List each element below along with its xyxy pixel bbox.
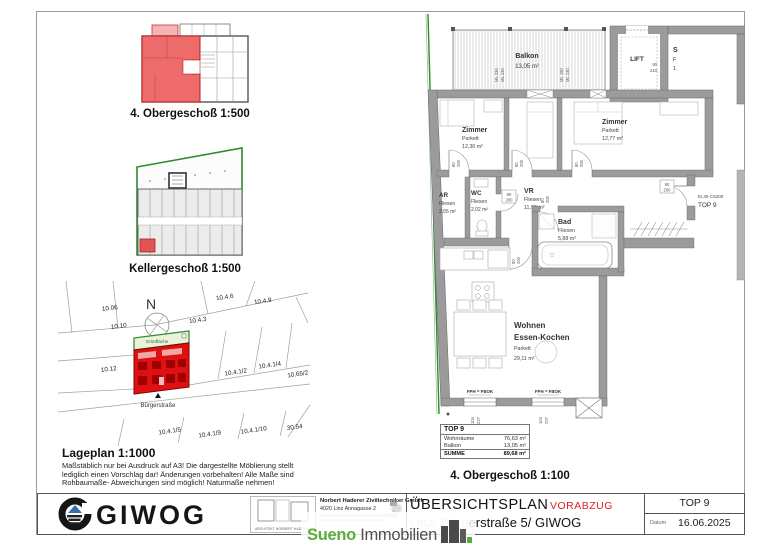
room-label-bad: Bad Fliesen 5,88 m²: [558, 219, 576, 242]
kitchen: [440, 248, 510, 302]
svg-text:12,30 m²: 12,30 m²: [462, 144, 483, 150]
svg-text:Essen-Kochen: Essen-Kochen: [514, 333, 570, 342]
svg-text:1: 1: [673, 66, 676, 72]
balcony: [453, 30, 605, 90]
svg-text:2,65 m²: 2,65 m²: [439, 209, 456, 215]
svg-text:104: 104: [470, 416, 475, 424]
svg-text:S: S: [673, 47, 678, 54]
giwog-logo: GIWOG: [58, 497, 244, 531]
watermark-building-icon: [440, 517, 472, 545]
area-summary-table: TOP 9 Wohnräume 76,63 m² Balkon 13,05 m²…: [440, 424, 530, 459]
svg-text:Fliesen: Fliesen: [471, 199, 487, 205]
caption-obergeschoss-500: 4. Obergeschoß 1:500: [75, 108, 305, 120]
floorplan-main: Balkon 13,05 m² ML 230 ML 230 ML 190 ML …: [424, 10, 745, 430]
note-line-3: Rohbaumaße- Abweichungen sind möglich! N…: [62, 479, 374, 488]
svg-text:10.4.6: 10.4.6: [216, 293, 235, 302]
svg-text:Fliesen: Fliesen: [558, 228, 575, 234]
document-title: ÜBERSICHTSPLAN: [410, 497, 548, 513]
green-area-label: Grünfläche: [146, 339, 169, 344]
svg-text:Bad: Bad: [558, 219, 571, 226]
mountain-icon: [68, 505, 82, 513]
table-total-row: SUMME 89,68 m²: [441, 449, 529, 458]
table-row: Balkon 13,05 m²: [441, 442, 529, 449]
svg-text:12,77 m²: 12,77 m²: [602, 136, 623, 142]
svg-text:VR: VR: [524, 188, 534, 195]
caption-lageplan: Lageplan 1:1000: [62, 446, 155, 460]
room-label-living: Wohnen Essen-Kochen Parkett 29,11 m²: [514, 321, 570, 362]
svg-text:10.4.1/4: 10.4.1/4: [258, 360, 282, 370]
room-label-balkon: Balkon: [515, 53, 538, 60]
svg-text:Parkett: Parkett: [462, 136, 479, 142]
siteplan: N Grünfläche Bürgerstraße 10.06 10.4.6 1…: [58, 281, 310, 446]
svg-text:Fliesen: Fliesen: [439, 201, 455, 207]
svg-text:227: 227: [544, 416, 549, 424]
table-row: Wohnräume 76,63 m²: [441, 435, 529, 442]
svg-text:10.65/2: 10.65/2: [287, 370, 309, 380]
svg-text:Parkett: Parkett: [514, 346, 531, 352]
svg-text:5,88 m²: 5,88 m²: [558, 236, 576, 242]
entry-height: 200: [664, 188, 672, 193]
watermark-text: Sueno Immobilien: [307, 526, 437, 545]
caption-obergeschoss-100: 4. Obergeschoß 1:100: [420, 470, 600, 482]
svg-text:29,11 m²: 29,11 m²: [514, 356, 535, 362]
bedroom-door-dims: 80 200 80 200 80 200: [451, 159, 584, 167]
stair-hatch-main: [630, 222, 688, 236]
svg-text:200: 200: [519, 159, 524, 167]
street-marker: [155, 393, 161, 398]
room-label-lift: LIFT: [630, 56, 644, 63]
dining-set: [454, 300, 506, 368]
svg-text:ML 230: ML 230: [494, 68, 499, 82]
svg-text:10.4.9: 10.4.9: [254, 297, 273, 306]
svg-text:10.12: 10.12: [101, 365, 118, 374]
summary-title: TOP 9: [441, 425, 529, 435]
svg-text:200: 200: [545, 195, 550, 203]
date-value: 16.06.2025: [678, 517, 731, 529]
street-label: Bürgerstraße: [140, 403, 176, 409]
entry-width: 90: [665, 182, 670, 187]
window-dims: 104 227 104 227: [470, 416, 549, 424]
room-label-zimmer2: Zimmer Parkett 12,77 m²: [602, 119, 628, 142]
giwog-wordmark: GIWOG: [96, 500, 207, 530]
svg-text:AR: AR: [439, 192, 449, 199]
miniplan-kellergeschoss: [125, 133, 250, 263]
plan-sheet: 4. Obergeschoß 1:500 Kellergeschoß 1:500: [0, 0, 770, 545]
svg-text:200: 200: [506, 198, 514, 203]
svg-text:10.4.1/9: 10.4.1/9: [198, 429, 222, 439]
svg-text:Fliesen: Fliesen: [524, 197, 541, 203]
svg-text:10.4.3: 10.4.3: [189, 316, 208, 325]
address-suffix: erstraße 5/ GIWOG: [469, 515, 582, 530]
scale-note: Maßstäblich nur bei Ausdruck auf A3! Die…: [62, 462, 374, 488]
entry-unit-label: TOP 9: [698, 202, 717, 209]
svg-text:FPH = FBOK: FPH = FBOK: [535, 389, 562, 394]
north-letter: N: [146, 296, 156, 312]
svg-text:2,02 m²: 2,02 m²: [471, 207, 488, 213]
svg-text:ML 190: ML 190: [559, 68, 564, 82]
svg-text:10.4.1/5: 10.4.1/5: [158, 426, 182, 436]
room-label-zimmer1: Zimmer Parkett 12,30 m²: [462, 127, 488, 150]
svg-text:10.4.1/10: 10.4.1/10: [240, 425, 267, 436]
svg-text:210: 210: [650, 68, 658, 73]
svg-text:ML 230: ML 230: [500, 68, 505, 82]
watermark: Sueno Immobilien: [301, 512, 475, 545]
stairwell-truncated-label: S F 1: [673, 47, 678, 72]
svg-text:104: 104: [538, 416, 543, 424]
svg-text:80: 80: [507, 192, 512, 197]
caption-kellergeschoss-500: Kellergeschoß 1:500: [70, 263, 300, 275]
svg-text:200: 200: [456, 159, 461, 167]
svg-text:F: F: [673, 57, 677, 63]
svg-text:10.10: 10.10: [111, 322, 128, 331]
room-label-ar: AR Fliesen 2,65 m²: [439, 192, 456, 215]
fph-labels: FPH = FBOK FPH = FBOK: [467, 389, 562, 394]
svg-text:Parkett: Parkett: [602, 128, 619, 134]
svg-text:30.54: 30.54: [286, 423, 303, 432]
svg-text:13,05 m²: 13,05 m²: [515, 64, 539, 70]
svg-text:WC: WC: [471, 190, 482, 197]
svg-text:ML 230: ML 230: [565, 68, 570, 82]
svg-text:200: 200: [579, 159, 584, 167]
svg-text:200: 200: [516, 256, 521, 264]
entry-fire-class: EI,30-CS200: [698, 194, 724, 199]
room-label-wc: WC Fliesen 2,02 m²: [471, 190, 488, 213]
svg-text:90: 90: [652, 62, 657, 67]
status-stamp: VORABZUG: [550, 500, 613, 512]
unit-label: TOP 9: [645, 494, 744, 514]
svg-text:Zimmer: Zimmer: [462, 127, 488, 134]
miniplan-obergeschoss: [125, 22, 255, 108]
date-label: Datum: [650, 520, 666, 526]
svg-text:Zimmer: Zimmer: [602, 119, 628, 126]
svg-text:FPH = FBOK: FPH = FBOK: [467, 389, 494, 394]
svg-text:227: 227: [476, 416, 481, 424]
bathroom: 80 200: [532, 195, 624, 276]
svg-text:Wohnen: Wohnen: [514, 321, 546, 330]
